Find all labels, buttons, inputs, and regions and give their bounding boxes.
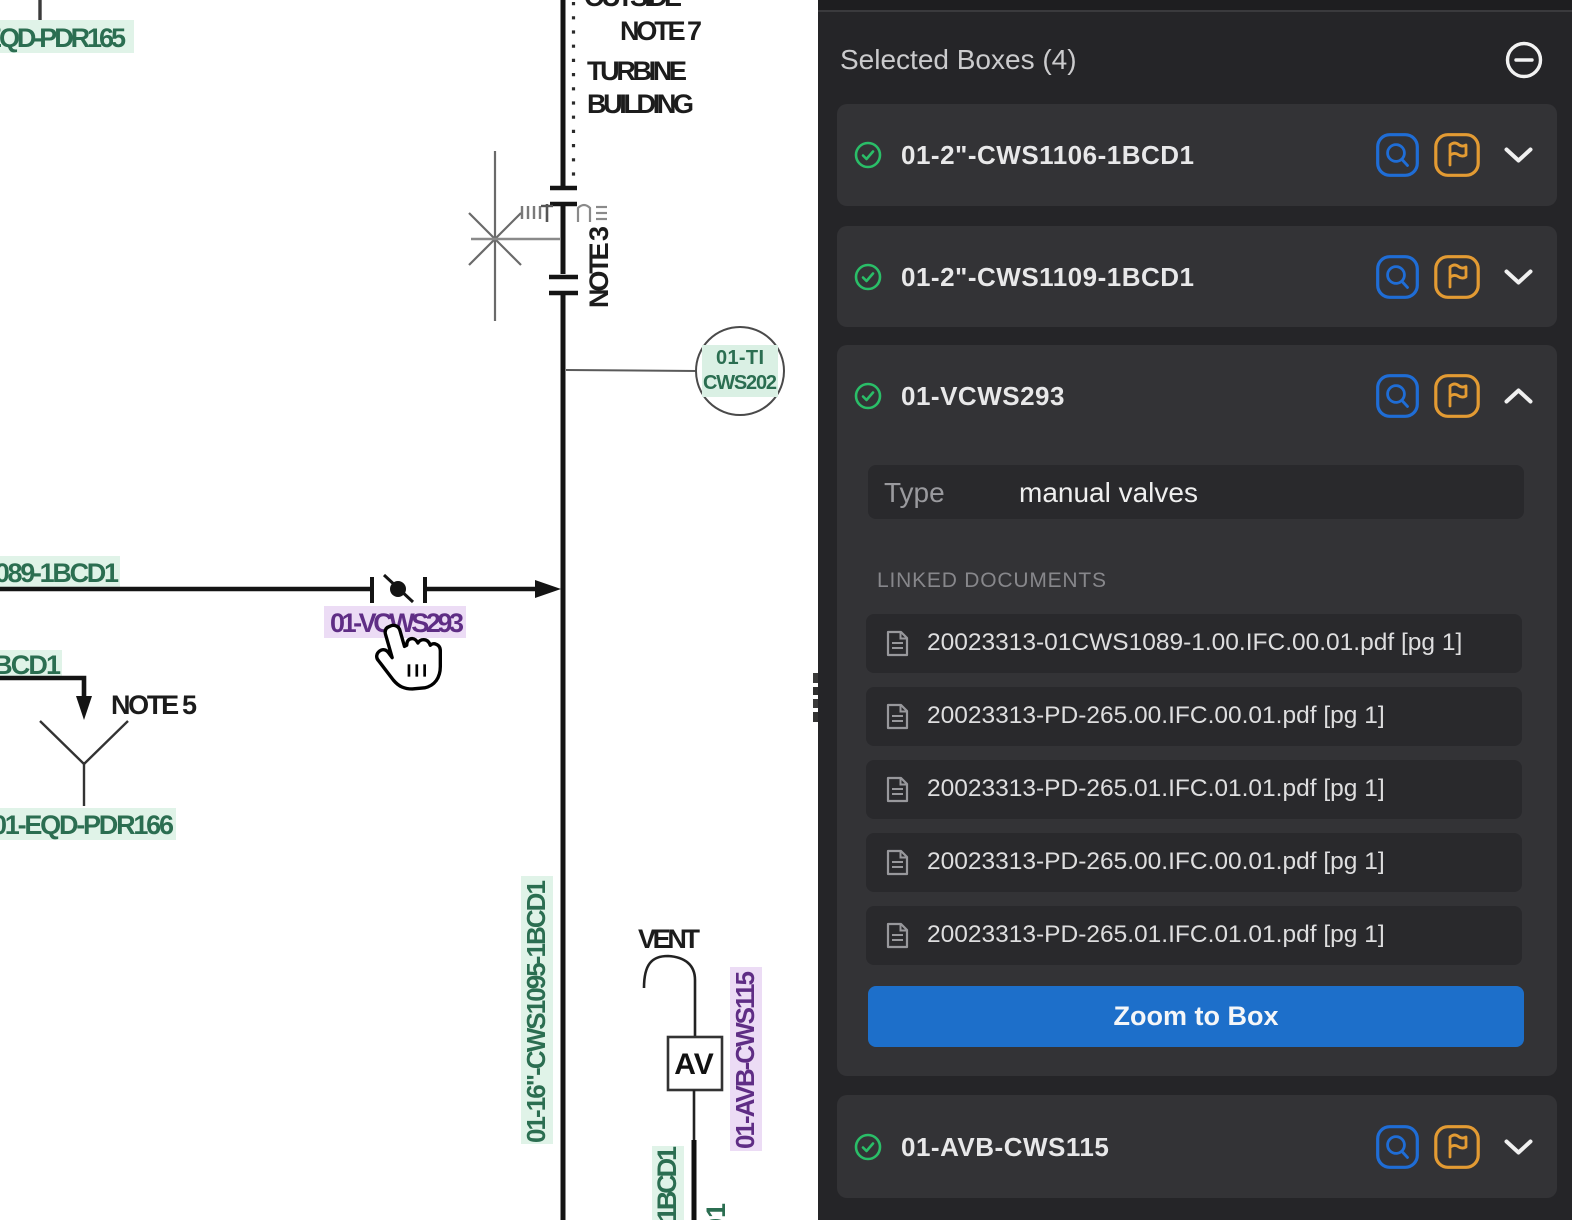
svg-text:NOTE 3: NOTE 3	[584, 226, 614, 308]
svg-text:OUTSIDE: OUTSIDE	[584, 0, 682, 12]
svg-text:1BCD1: 1BCD1	[0, 650, 61, 680]
svg-text:1BCD1: 1BCD1	[652, 1146, 682, 1220]
svg-text:01-16"-CWS1095-1BCD1: 01-16"-CWS1095-1BCD1	[521, 880, 551, 1143]
svg-text:01-AVB-CWS115: 01-AVB-CWS115	[730, 971, 760, 1149]
svg-text:AV: AV	[674, 1048, 713, 1081]
svg-text:BUILDING: BUILDING	[587, 89, 694, 119]
svg-text:01-TI: 01-TI	[716, 347, 764, 369]
svg-text:TURBINE: TURBINE	[587, 56, 687, 86]
svg-text:NOTE 5: NOTE 5	[111, 690, 197, 720]
svg-text:VENT: VENT	[638, 924, 701, 954]
svg-text:CWS202: CWS202	[703, 372, 777, 394]
svg-text:EQD-PDR165: EQD-PDR165	[0, 23, 126, 53]
svg-text:01-EQD-PDR166: 01-EQD-PDR166	[0, 810, 174, 840]
svg-text:NOTE 7: NOTE 7	[620, 16, 702, 46]
svg-text:1089-1BCD1: 1089-1BCD1	[0, 558, 119, 588]
svg-text:91: 91	[701, 1203, 731, 1220]
